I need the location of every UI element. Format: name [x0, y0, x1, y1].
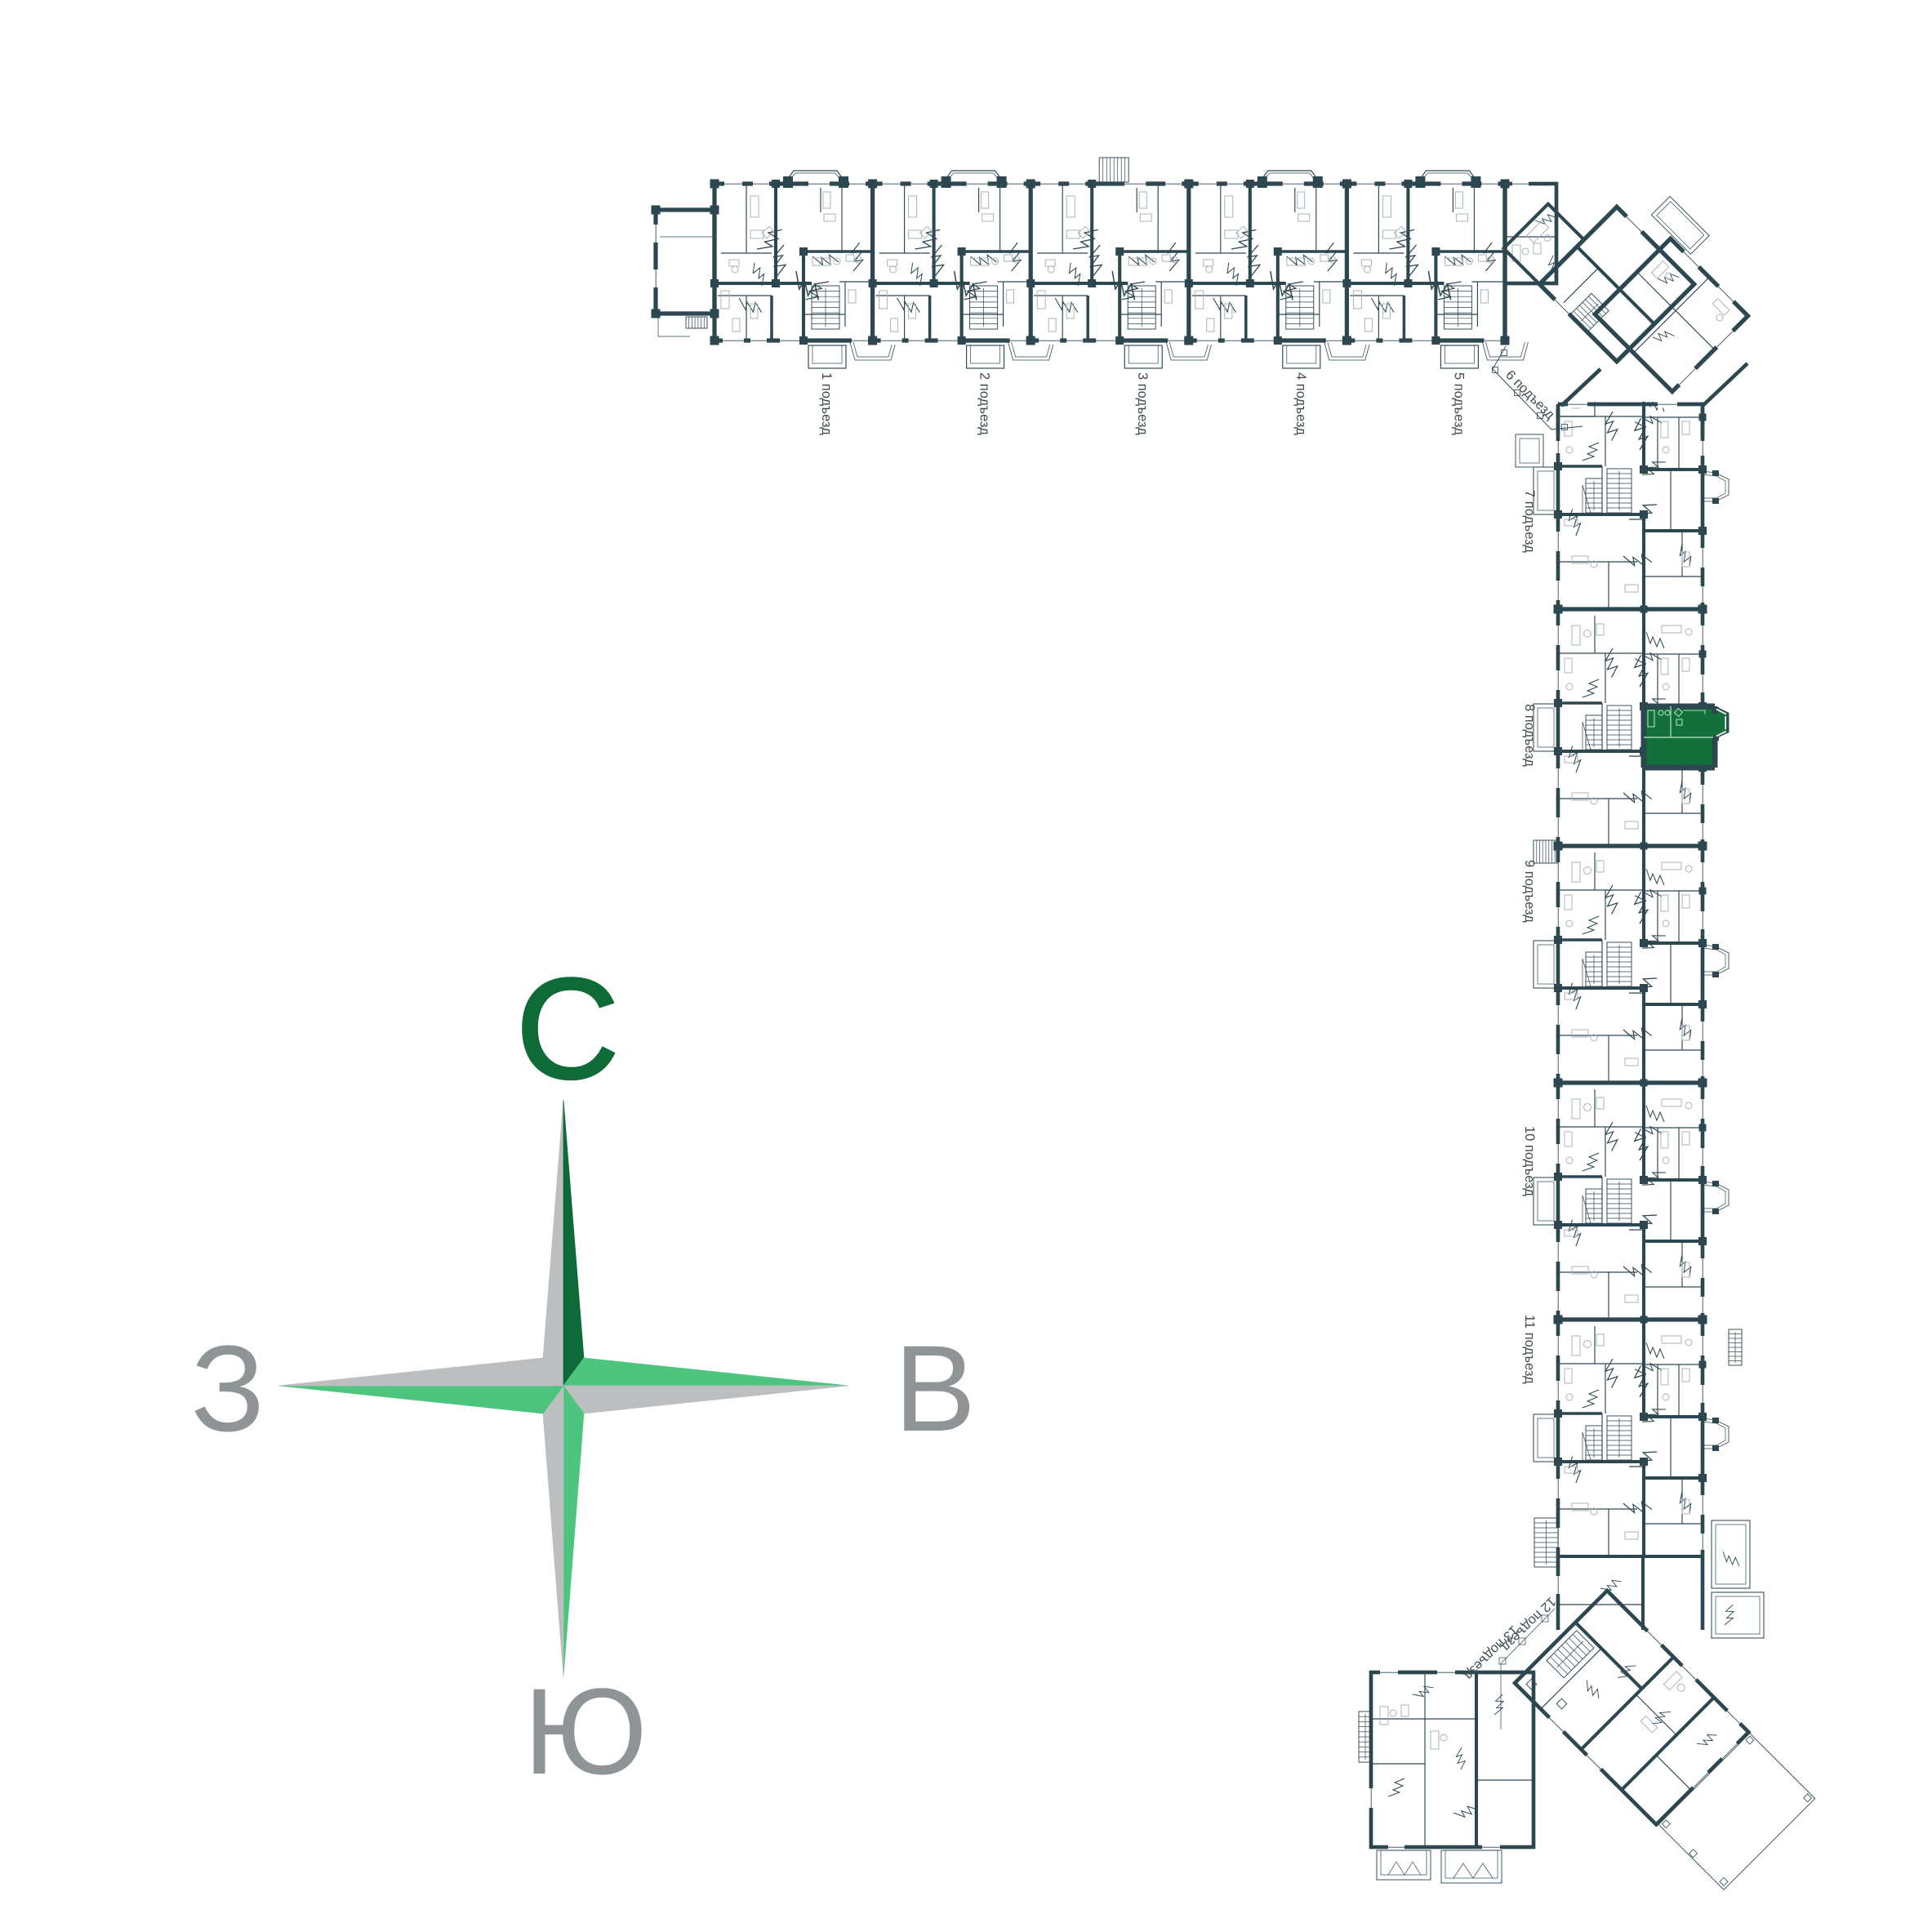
svg-text:5 подъезд: 5 подъезд [1451, 372, 1466, 435]
svg-text:Ю: Ю [523, 1663, 648, 1800]
svg-text:11 подъезд: 11 подъезд [1522, 1315, 1537, 1384]
svg-text:10 подъезд: 10 подъезд [1522, 1126, 1537, 1196]
svg-text:4 подъезд: 4 подъезд [1293, 372, 1308, 435]
svg-text:8 подъезд: 8 подъезд [1522, 704, 1537, 767]
svg-text:2 подъезд: 2 подъезд [977, 372, 992, 435]
svg-text:3 подъезд: 3 подъезд [1135, 372, 1150, 435]
svg-text:7 подъезд: 7 подъезд [1522, 490, 1537, 553]
svg-text:З: З [191, 1320, 265, 1457]
svg-text:1 подъезд: 1 подъезд [819, 372, 834, 435]
svg-text:В: В [894, 1320, 976, 1457]
svg-text:9 подъезд: 9 подъезд [1522, 860, 1537, 923]
svg-text:С: С [516, 950, 619, 1109]
